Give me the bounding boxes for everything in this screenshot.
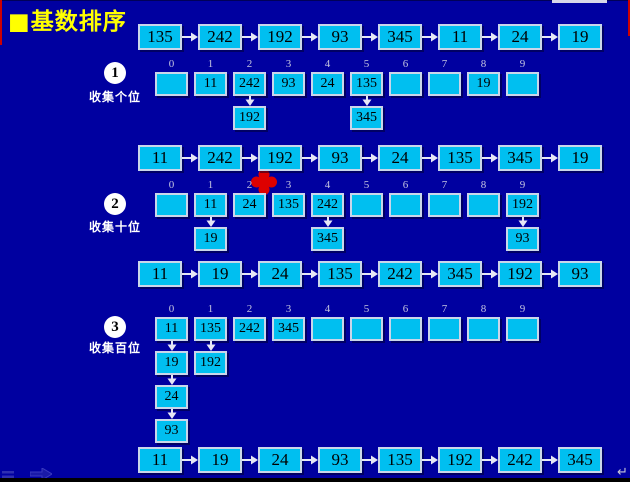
pass-badge: 3 xyxy=(104,316,126,338)
bucket-index-label: 2 xyxy=(247,303,253,317)
after-pass-2-list: 11192413524234519293 xyxy=(138,261,602,287)
arrow-right-icon xyxy=(242,24,258,50)
bucket-column: 2242192 xyxy=(233,58,266,130)
arrow-right-icon xyxy=(482,447,498,473)
arrow-right-icon xyxy=(182,261,198,287)
bucket-node: 19 xyxy=(467,72,500,96)
bucket-column: 4 xyxy=(311,303,344,341)
arrow-right-icon xyxy=(482,24,498,50)
bucket-index-label: 6 xyxy=(403,179,409,193)
bucket-column: 424 xyxy=(311,58,344,96)
bucket-node: 11 xyxy=(155,317,188,341)
bucket-column: 7 xyxy=(428,303,461,341)
bucket-index-label: 1 xyxy=(208,303,214,317)
bucket-node xyxy=(155,193,188,217)
arrow-down-icon xyxy=(166,409,178,419)
list-node: 93 xyxy=(318,24,362,50)
bucket-node: 192 xyxy=(233,106,266,130)
bucket-node: 242 xyxy=(233,317,266,341)
bucket-node xyxy=(155,72,188,96)
bucket-index-label: 5 xyxy=(364,58,370,72)
arrow-right-icon xyxy=(482,145,498,171)
bucket-index-label: 3 xyxy=(286,303,292,317)
bucket-column: 2242 xyxy=(233,303,266,341)
arrow-down-icon xyxy=(166,341,178,351)
arrow-right-icon xyxy=(542,447,558,473)
bucket-index-label: 5 xyxy=(364,303,370,317)
list-node: 24 xyxy=(498,24,542,50)
bucket-node: 24 xyxy=(311,72,344,96)
bucket-index-label: 9 xyxy=(520,58,526,72)
bucket-column: 3135 xyxy=(272,179,305,217)
bucket-column: 111 xyxy=(194,58,227,96)
bottom-black-bar xyxy=(0,478,630,482)
bucket-column: 8 xyxy=(467,179,500,217)
list-node: 19 xyxy=(558,24,602,50)
bucket-node xyxy=(350,193,383,217)
arrow-down-icon xyxy=(244,96,256,106)
arrow-down-icon xyxy=(166,375,178,385)
bucket-column: 0 xyxy=(155,179,188,217)
arrow-right-icon xyxy=(542,24,558,50)
arrow-right-icon xyxy=(182,145,198,171)
list-node: 345 xyxy=(558,447,602,473)
bucket-node: 135 xyxy=(194,317,227,341)
bucket-node: 19 xyxy=(194,227,227,251)
pass-badge: 1 xyxy=(104,62,126,84)
bucket-column: 0 xyxy=(155,58,188,96)
list-node: 24 xyxy=(258,261,302,287)
bucket-node: 19 xyxy=(155,351,188,375)
bucket-node: 192 xyxy=(506,193,539,217)
list-node: 345 xyxy=(498,145,542,171)
bucket-column: 6 xyxy=(389,179,422,217)
list-node: 19 xyxy=(558,145,602,171)
bucket-node: 135 xyxy=(350,72,383,96)
bucket-node xyxy=(467,193,500,217)
bucket-node: 345 xyxy=(350,106,383,130)
list-node: 135 xyxy=(438,145,482,171)
arrow-right-icon xyxy=(422,145,438,171)
list-node: 24 xyxy=(378,145,422,171)
bucket-node: 24 xyxy=(155,385,188,409)
bucket-node: 24 xyxy=(233,193,266,217)
list-node: 11 xyxy=(438,24,482,50)
list-node: 242 xyxy=(198,24,242,50)
final-list: 11192493135192242345 xyxy=(138,447,602,473)
pass-label: 收集个位 xyxy=(80,88,150,105)
arrow-down-icon xyxy=(361,96,373,106)
bucket-index-label: 0 xyxy=(169,58,175,72)
arrow-right-icon xyxy=(542,145,558,171)
bucket-column: 4242345 xyxy=(311,179,344,251)
arrow-down-icon xyxy=(205,217,217,227)
bucket-index-label: 0 xyxy=(169,179,175,193)
bucket-column: 9 xyxy=(506,58,539,96)
bucket-index-label: 4 xyxy=(325,179,331,193)
arrow-right-icon xyxy=(302,261,318,287)
bucket-index-label: 3 xyxy=(286,58,292,72)
list-node: 345 xyxy=(438,261,482,287)
arrow-right-icon xyxy=(422,261,438,287)
arrow-right-icon xyxy=(242,447,258,473)
left-edge-artifact xyxy=(0,0,2,45)
bucket-column: 819 xyxy=(467,58,500,96)
bucket-node: 345 xyxy=(272,317,305,341)
bucket-node xyxy=(311,317,344,341)
bucket-index-label: 8 xyxy=(481,58,487,72)
bucket-index-label: 9 xyxy=(520,303,526,317)
arrow-right-icon xyxy=(362,261,378,287)
list-node: 192 xyxy=(258,145,302,171)
arrow-down-icon xyxy=(205,341,217,351)
bucket-column: 6 xyxy=(389,303,422,341)
bucket-node xyxy=(389,317,422,341)
bucket-index-label: 8 xyxy=(481,303,487,317)
bucket-node xyxy=(506,317,539,341)
bucket-column: 7 xyxy=(428,179,461,217)
radix-sort-slide: ■基数排序 ↵ 13524219293345112419112421929324… xyxy=(0,0,630,482)
bucket-column: 8 xyxy=(467,303,500,341)
bucket-node: 345 xyxy=(311,227,344,251)
list-node: 93 xyxy=(318,145,362,171)
arrow-right-icon xyxy=(242,145,258,171)
list-node: 135 xyxy=(318,261,362,287)
initial-list: 13524219293345112419 xyxy=(138,24,602,50)
arrow-right-icon xyxy=(302,24,318,50)
bucket-node: 93 xyxy=(155,419,188,443)
bucket-column: 5 xyxy=(350,179,383,217)
bucket-node: 93 xyxy=(272,72,305,96)
arrow-right-icon xyxy=(362,447,378,473)
list-node: 135 xyxy=(378,447,422,473)
bucket-index-label: 8 xyxy=(481,179,487,193)
top-edge-artifact xyxy=(552,0,607,3)
bucket-index-label: 6 xyxy=(403,303,409,317)
bucket-index-label: 2 xyxy=(247,58,253,72)
list-node: 11 xyxy=(138,261,182,287)
list-node: 242 xyxy=(198,145,242,171)
pass-badge: 2 xyxy=(104,193,126,215)
list-node: 93 xyxy=(558,261,602,287)
bucket-column: 011192493 xyxy=(155,303,188,443)
bucket-index-label: 7 xyxy=(442,58,448,72)
bucket-column: 393 xyxy=(272,58,305,96)
list-node: 242 xyxy=(498,447,542,473)
arrow-right-icon xyxy=(422,447,438,473)
list-node: 192 xyxy=(498,261,542,287)
arrow-right-icon xyxy=(482,261,498,287)
top-edge-line xyxy=(0,0,630,1)
list-node: 19 xyxy=(198,261,242,287)
list-node: 135 xyxy=(138,24,182,50)
bucket-column: 1135192 xyxy=(194,303,227,375)
arrow-right-icon xyxy=(302,447,318,473)
bucket-index-label: 4 xyxy=(325,58,331,72)
bucket-node xyxy=(506,72,539,96)
bucket-node: 242 xyxy=(233,72,266,96)
arrow-right-icon xyxy=(242,261,258,287)
arrow-right-icon xyxy=(182,24,198,50)
list-node: 345 xyxy=(378,24,422,50)
bucket-node xyxy=(350,317,383,341)
bucket-node xyxy=(389,72,422,96)
bucket-node: 11 xyxy=(194,72,227,96)
bucket-node: 192 xyxy=(194,351,227,375)
arrow-down-icon xyxy=(322,217,334,227)
bucket-index-label: 6 xyxy=(403,58,409,72)
bucket-index-label: 4 xyxy=(325,303,331,317)
arrow-right-icon xyxy=(362,24,378,50)
arrow-right-icon xyxy=(422,24,438,50)
bucket-column: 3345 xyxy=(272,303,305,341)
pass-label: 收集十位 xyxy=(80,218,150,235)
arrow-right-icon xyxy=(302,145,318,171)
list-node: 19 xyxy=(198,447,242,473)
bucket-node: 135 xyxy=(272,193,305,217)
bucket-column: 7 xyxy=(428,58,461,96)
bucket-index-label: 7 xyxy=(442,179,448,193)
pass-label: 收集百位 xyxy=(80,339,150,356)
bucket-index-label: 2 xyxy=(247,179,253,193)
bucket-node: 242 xyxy=(311,193,344,217)
bucket-column: 5135345 xyxy=(350,58,383,130)
list-node: 11 xyxy=(138,145,182,171)
list-node: 11 xyxy=(138,447,182,473)
list-node: 24 xyxy=(258,447,302,473)
bucket-index-label: 5 xyxy=(364,179,370,193)
arrow-right-icon xyxy=(182,447,198,473)
bucket-node xyxy=(389,193,422,217)
bucket-node: 11 xyxy=(194,193,227,217)
bucket-index-label: 1 xyxy=(208,58,214,72)
bucket-column: 5 xyxy=(350,303,383,341)
bucket-column: 6 xyxy=(389,58,422,96)
bucket-node xyxy=(428,193,461,217)
list-node: 242 xyxy=(378,261,422,287)
arrow-down-icon xyxy=(517,217,529,227)
arrow-right-icon xyxy=(362,145,378,171)
bucket-index-label: 1 xyxy=(208,179,214,193)
bucket-column: 11119 xyxy=(194,179,227,251)
list-node: 93 xyxy=(318,447,362,473)
bucket-node: 93 xyxy=(506,227,539,251)
list-node: 192 xyxy=(258,24,302,50)
list-node: 192 xyxy=(438,447,482,473)
page-title: ■基数排序 xyxy=(8,2,127,36)
bucket-index-label: 7 xyxy=(442,303,448,317)
after-pass-1-list: 11242192932413534519 xyxy=(138,145,602,171)
arrow-right-icon xyxy=(542,261,558,287)
bucket-node xyxy=(428,72,461,96)
bucket-column: 224 xyxy=(233,179,266,217)
bucket-index-label: 9 xyxy=(520,179,526,193)
bucket-index-label: 0 xyxy=(169,303,175,317)
bucket-node xyxy=(428,317,461,341)
bucket-node xyxy=(467,317,500,341)
bucket-index-label: 3 xyxy=(286,179,292,193)
bucket-column: 919293 xyxy=(506,179,539,251)
bucket-column: 9 xyxy=(506,303,539,341)
